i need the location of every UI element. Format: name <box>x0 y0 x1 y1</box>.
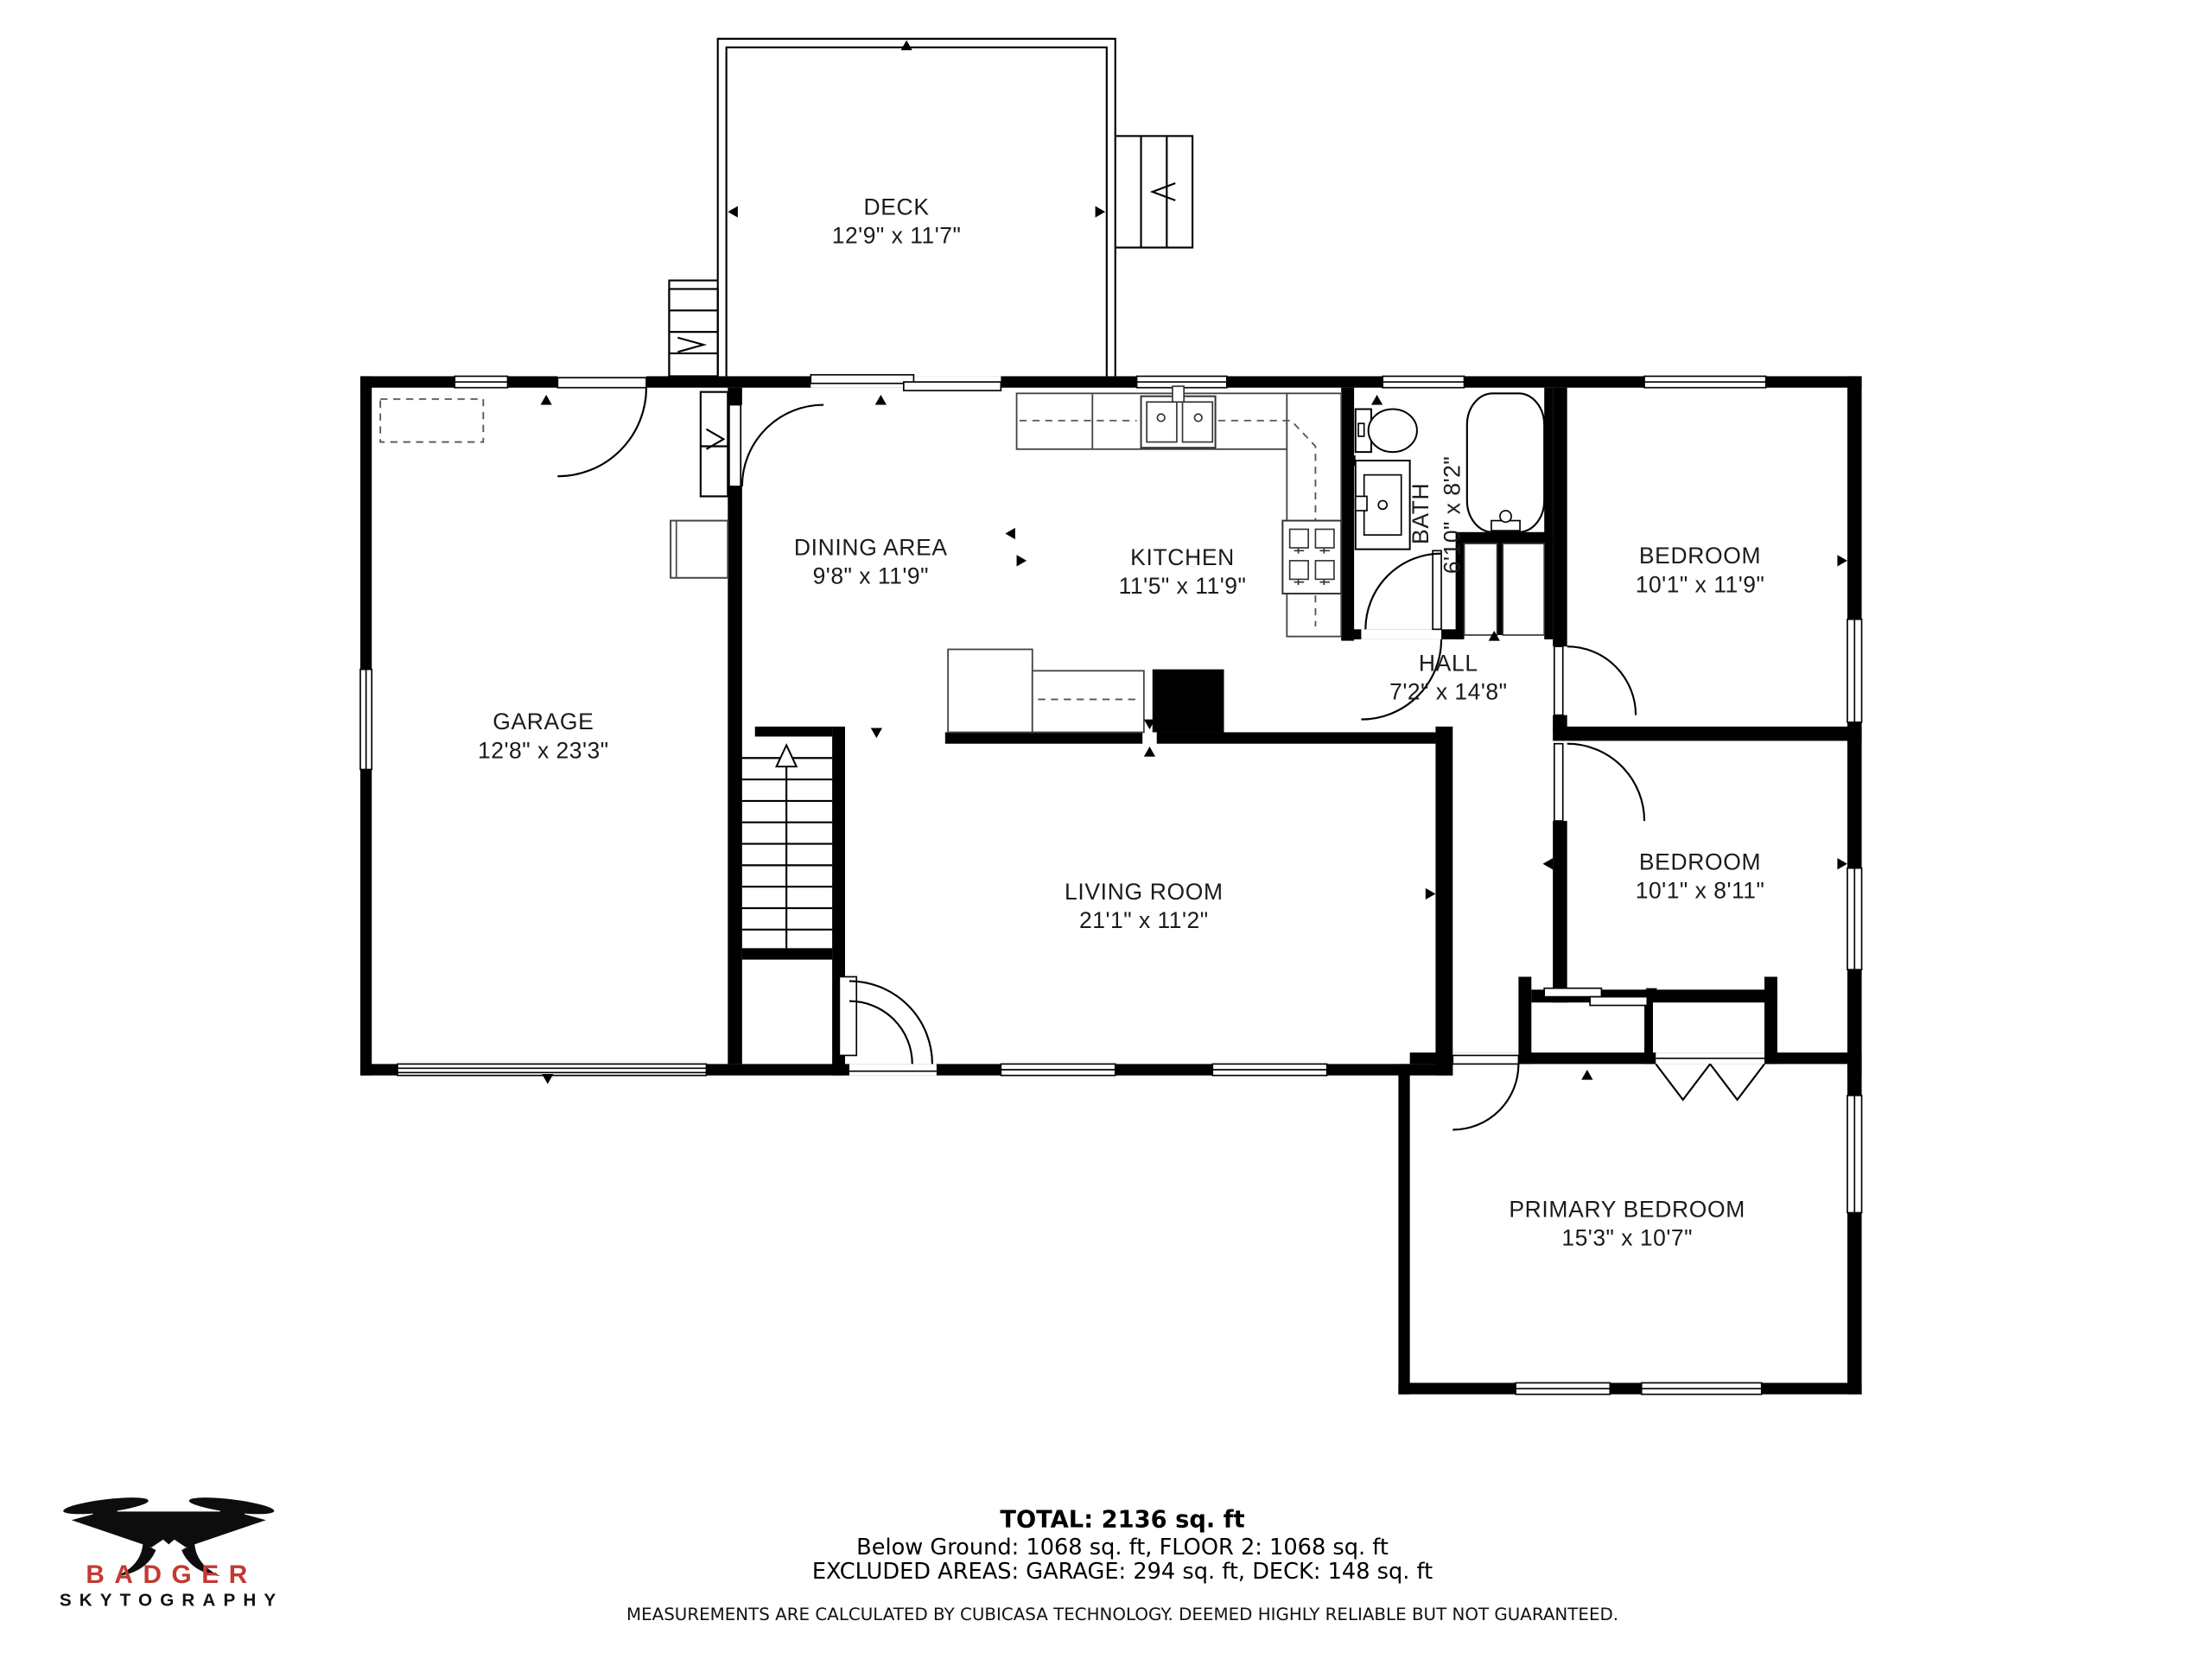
window-bath-top <box>1382 376 1464 387</box>
logo: BADGER SKYTOGRAPHY <box>60 1494 283 1610</box>
summary-floors: Below Ground: 1068 sq. ft, FLOOR 2: 1068… <box>856 1535 1389 1560</box>
window-garage-left <box>360 670 372 770</box>
room-label-kitchen: KITCHEN <box>1130 544 1235 570</box>
room-label-hall: HALL <box>1419 650 1478 676</box>
summary-excluded: EXCLUDED AREAS: GARAGE: 294 sq. ft, DECK… <box>812 1559 1433 1585</box>
window-bedroom1-top <box>1644 376 1766 387</box>
deck-structure <box>669 39 1192 377</box>
logo-brand-text: BADGER <box>86 1560 257 1589</box>
kitchen-stove <box>1282 521 1341 594</box>
wall-hall-corridor-right <box>1518 976 1531 1064</box>
marker <box>541 395 552 405</box>
room-label-dining: DINING AREA <box>794 534 948 560</box>
deck-stairs-right-arrow <box>1153 183 1175 200</box>
door-primary-bedroom <box>1452 1052 1518 1129</box>
door-bedroom2 <box>1554 744 1644 821</box>
marker <box>1543 858 1554 869</box>
garage-overhead-storage-dash <box>380 399 483 442</box>
marker <box>1371 395 1382 405</box>
deck-rail-marker-left <box>728 207 738 218</box>
door-bedroom1 <box>1554 646 1636 715</box>
bath-sink-vanity <box>1356 461 1410 550</box>
kitchen-island-1 <box>948 649 1033 732</box>
wall-living-right <box>1435 727 1452 1076</box>
window-living-bottom-1 <box>1001 1064 1115 1075</box>
wall-tub-bottom <box>1456 532 1554 543</box>
entry-landing <box>701 392 728 497</box>
room-label-bath: BATH <box>1408 483 1433 544</box>
window-primary-bottom-2 <box>1642 1382 1762 1394</box>
room-label-living: LIVING ROOM <box>1065 879 1224 905</box>
staircase-main <box>742 745 832 948</box>
deck-rail-marker-right <box>1096 207 1106 218</box>
deck-stairs-right <box>1116 136 1192 247</box>
marker <box>1005 528 1015 539</box>
garage-details <box>380 399 728 578</box>
marker <box>1426 888 1436 899</box>
stair-up-arrow <box>777 745 797 766</box>
marker <box>1837 858 1847 869</box>
room-dims-bath: 6'10" x 8'2" <box>1440 456 1465 574</box>
wall-bedrooms-divider <box>1553 727 1861 741</box>
logo-subtitle-text: SKYTOGRAPHY <box>60 1591 283 1611</box>
floor-plan-page: DECK 12'9" x 11'7" DINING AREA 9'8" x 11… <box>0 0 2212 1659</box>
marker <box>1581 1070 1592 1080</box>
wall-below-stairs <box>742 948 832 959</box>
floor-plan-canvas: DECK 12'9" x 11'7" DINING AREA 9'8" x 11… <box>0 0 2212 1659</box>
kitchen-island-2 <box>1033 671 1144 732</box>
deck-rail-marker-top <box>901 41 912 51</box>
garage-vehicle-door <box>397 1064 706 1075</box>
marker <box>1837 555 1847 566</box>
wall-extension-left <box>1398 1064 1409 1394</box>
room-dims-dining: 9'8" x 11'9" <box>813 563 929 588</box>
wall-living-top-a <box>945 732 1142 743</box>
room-dims-bedroom1: 10'1" x 11'9" <box>1636 571 1765 597</box>
room-dims-deck: 12'9" x 11'7" <box>832 223 962 249</box>
closet-bifold-primary <box>1656 1052 1764 1100</box>
window-bedroom1-right <box>1847 620 1862 722</box>
room-dims-bedroom2: 10'1" x 8'11" <box>1636 877 1765 903</box>
wall-bath-right <box>1544 388 1553 639</box>
marker <box>875 395 887 405</box>
marker <box>871 728 882 739</box>
room-dims-primary: 15'3" x 10'7" <box>1561 1225 1693 1251</box>
wall-extension-bottom <box>1398 1382 1861 1394</box>
room-label-bedroom2: BEDROOM <box>1639 849 1761 874</box>
room-label-primary: PRIMARY BEDROOM <box>1509 1196 1745 1222</box>
wall-right-main <box>1847 376 1862 1075</box>
room-dims-garage: 12'8" x 23'3" <box>478 737 609 763</box>
bathtub <box>1467 393 1544 532</box>
window-primary-bottom-1 <box>1516 1382 1610 1394</box>
window-garage-top <box>454 376 507 387</box>
room-label-bedroom1: BEDROOM <box>1639 543 1761 569</box>
wall-kitchen-bath <box>1341 388 1354 641</box>
window-bedroom2-right <box>1847 868 1862 969</box>
garage-utility-unit <box>671 521 728 578</box>
room-dims-kitchen: 11'5" x 11'9" <box>1119 573 1247 599</box>
marker <box>542 1074 553 1084</box>
wall-closet-partition2 <box>1764 976 1777 1064</box>
fireplace-block <box>1153 670 1224 733</box>
wall-bedroom1-left-upper <box>1553 388 1567 647</box>
marker <box>1017 555 1027 566</box>
summary-disclaimer: MEASUREMENTS ARE CALCULATED BY CUBICASA … <box>626 1605 1618 1624</box>
toilet <box>1356 409 1417 452</box>
wall-bedroom2-left <box>1553 821 1567 1002</box>
wall-stairs-top <box>755 727 832 737</box>
wall-bath-closet-divider <box>1497 543 1503 635</box>
room-dims-hall: 7'2" x 14'8" <box>1389 678 1507 704</box>
room-label-garage: GARAGE <box>493 709 594 734</box>
marker <box>1144 747 1155 757</box>
deck-stairs-left <box>669 289 717 376</box>
door-living-exterior <box>839 976 937 1075</box>
summary-total: TOTAL: 2136 sq. ft <box>1000 1507 1244 1534</box>
door-garage-to-dining <box>728 405 823 486</box>
window-living-bottom-2 <box>1212 1064 1326 1075</box>
kitchen-counter-right <box>1287 393 1341 636</box>
kitchen-sink <box>1141 386 1216 448</box>
room-label-deck: DECK <box>863 194 929 219</box>
wall-garage-dining <box>728 388 742 1065</box>
sliding-door-deck <box>810 375 1001 391</box>
door-garage-entry <box>557 376 646 476</box>
summary-block: TOTAL: 2136 sq. ft Below Ground: 1068 sq… <box>626 1507 1618 1625</box>
deck-stairs-left-arrow <box>677 338 703 353</box>
window-primary-right <box>1847 1096 1862 1213</box>
room-dims-living: 21'1" x 11'2" <box>1079 907 1209 933</box>
hall-linen-closets <box>1465 543 1545 635</box>
